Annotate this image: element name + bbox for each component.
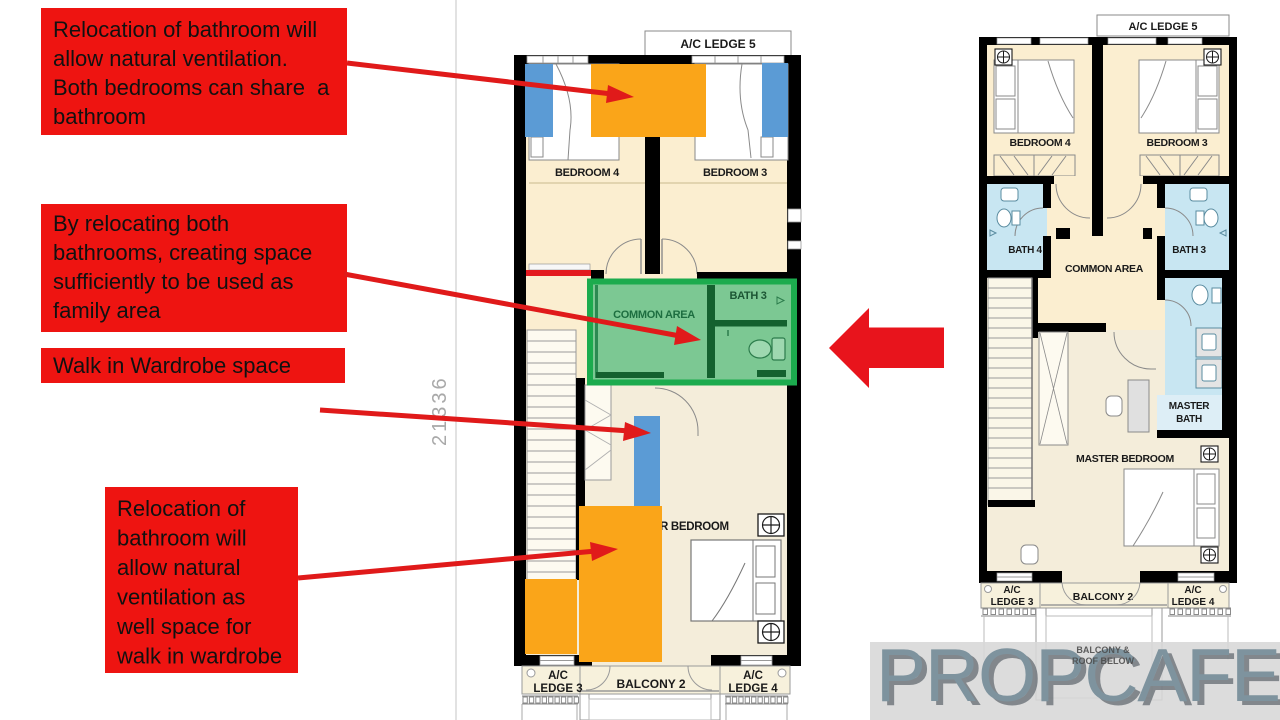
svg-text:LEDGE 3: LEDGE 3: [533, 683, 582, 695]
svg-text:BALCONY 2: BALCONY 2: [616, 677, 685, 691]
svg-text:MASTER BEDROOM: MASTER BEDROOM: [1076, 453, 1174, 465]
svg-text:LEDGE 4: LEDGE 4: [1172, 597, 1215, 608]
svg-text:BATH 4: BATH 4: [1008, 245, 1042, 256]
svg-text:A/C: A/C: [743, 670, 763, 682]
svg-text:BALCONY &: BALCONY &: [1076, 645, 1130, 655]
svg-text:21336: 21336: [429, 375, 451, 446]
svg-text:A/C LEDGE 5: A/C LEDGE 5: [1128, 21, 1197, 33]
svg-text:BEDROOM 3: BEDROOM 3: [703, 167, 767, 179]
svg-text:COMMON AREA: COMMON AREA: [1065, 263, 1144, 275]
svg-text:BATH 3: BATH 3: [1172, 245, 1206, 256]
svg-text:ROOF BELOW: ROOF BELOW: [1072, 656, 1134, 666]
svg-text:A/C LEDGE 5: A/C LEDGE 5: [680, 37, 756, 51]
svg-text:BALCONY 2: BALCONY 2: [1073, 591, 1134, 603]
svg-text:BATH 3: BATH 3: [729, 290, 766, 302]
svg-text:LEDGE 4: LEDGE 4: [728, 683, 778, 695]
svg-text:BEDROOM 4: BEDROOM 4: [1010, 137, 1071, 149]
svg-text:BEDROOM 3: BEDROOM 3: [1147, 137, 1208, 149]
svg-text:A/C: A/C: [548, 670, 568, 682]
svg-text:A/C: A/C: [1003, 585, 1020, 596]
svg-text:Walk in Wardrobe space: Walk in Wardrobe space: [53, 353, 291, 378]
svg-text:COMMON AREA: COMMON AREA: [613, 309, 695, 321]
svg-text:BEDROOM 4: BEDROOM 4: [555, 167, 620, 179]
svg-text:BATH: BATH: [1176, 414, 1202, 425]
svg-text:LEDGE 3: LEDGE 3: [991, 597, 1034, 608]
svg-text:MASTER: MASTER: [1169, 401, 1211, 412]
svg-text:A/C: A/C: [1184, 585, 1201, 596]
